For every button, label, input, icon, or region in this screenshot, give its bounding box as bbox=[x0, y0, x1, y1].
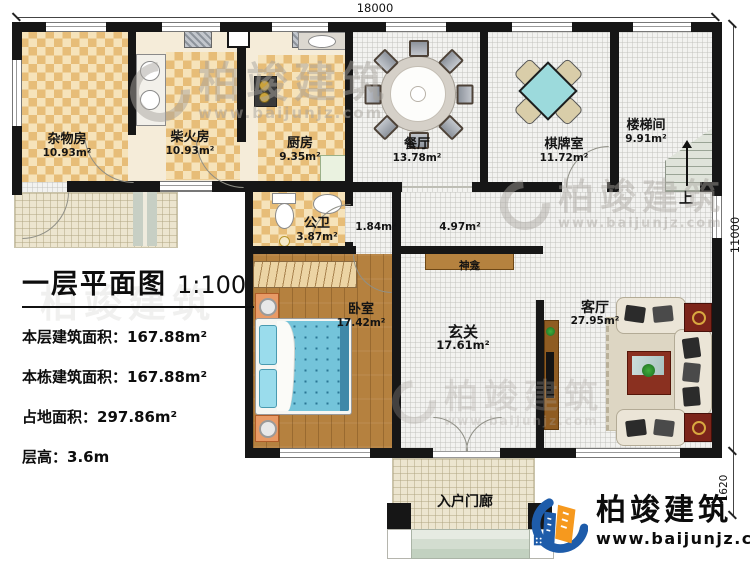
wall-kitchen-dining bbox=[345, 32, 353, 192]
plant-icon bbox=[642, 364, 655, 377]
info-line: 层高：3.6m bbox=[22, 446, 254, 467]
wall-firewood-kitchen bbox=[237, 32, 246, 142]
dining-chair bbox=[409, 40, 429, 57]
wall-top bbox=[12, 22, 722, 32]
terrace-strips bbox=[133, 192, 157, 246]
bed bbox=[255, 318, 352, 415]
hall-area-label: 4.97m² bbox=[432, 221, 488, 233]
window bbox=[46, 22, 106, 32]
room-label-kitchen: 厨房 9.35m² bbox=[255, 137, 345, 163]
plant-icon bbox=[546, 327, 555, 336]
porch-label: 入户门廊 bbox=[405, 491, 525, 511]
sofa-bottom bbox=[616, 409, 686, 446]
wall-bottom bbox=[680, 448, 722, 458]
sofa-right bbox=[674, 329, 712, 415]
wall-foyer-living bbox=[536, 300, 544, 448]
window bbox=[512, 22, 572, 32]
info-line: 占地面积：297.86m² bbox=[22, 406, 254, 427]
room-label-foyer: 玄关 17.61m² bbox=[418, 325, 508, 351]
tv-icon bbox=[546, 352, 554, 398]
dining-chair bbox=[365, 85, 382, 105]
stairs-up-arrow bbox=[686, 146, 688, 186]
floor-plan-canvas: 神龛 bbox=[0, 0, 750, 567]
window bbox=[160, 181, 212, 192]
wall-storage-firewood bbox=[128, 32, 136, 135]
room-label-bathroom: 公卫 3.87m² bbox=[272, 217, 362, 243]
info-line: 本层建筑面积：167.88m² bbox=[22, 326, 254, 347]
nightstand-lamp-icon bbox=[259, 420, 277, 438]
blanket-edge bbox=[340, 321, 349, 411]
window bbox=[576, 448, 680, 458]
wall-bottom bbox=[500, 448, 576, 458]
window bbox=[633, 22, 691, 32]
info-line: 本栋建筑面积：167.88m² bbox=[22, 366, 254, 387]
wall-game-stair bbox=[610, 32, 619, 182]
stairs-up-label: 上 bbox=[679, 188, 693, 208]
firewood-pot-1 bbox=[140, 61, 160, 81]
burner-2 bbox=[259, 92, 270, 103]
dimension-height: 11000 bbox=[728, 214, 742, 256]
dining-chair bbox=[457, 85, 474, 105]
wardrobe bbox=[253, 261, 357, 288]
shrine-label: 神龛 bbox=[459, 260, 480, 272]
shrine-cabinet: 神龛 bbox=[425, 253, 514, 270]
pillow bbox=[259, 325, 277, 365]
room-label-dining: 餐厅 13.78m² bbox=[372, 138, 462, 164]
plan-title: 一层平面图 bbox=[22, 262, 167, 301]
kitchen-sink bbox=[308, 35, 336, 48]
plan-scale: 1:100 bbox=[177, 271, 246, 299]
window bbox=[280, 448, 370, 458]
room-label-storage: 杂物房 10.93m² bbox=[22, 133, 112, 159]
entry-threshold bbox=[433, 451, 500, 458]
side-table-decor-icon bbox=[692, 421, 706, 435]
company-logo-text: 柏竣建筑 www.baijunjz.com bbox=[596, 494, 750, 548]
firewood-pot-2 bbox=[140, 90, 160, 110]
room-label-firewood: 柴火房 10.93m² bbox=[145, 131, 235, 157]
wall-bathroom-bottom bbox=[245, 246, 356, 254]
window bbox=[272, 22, 328, 32]
window bbox=[12, 60, 22, 126]
company-name: 柏竣建筑 bbox=[596, 494, 750, 527]
room-label-bedroom: 卧室 17.42m² bbox=[316, 303, 406, 329]
company-logo: 柏竣建筑 www.baijunjz.com bbox=[530, 494, 750, 558]
range-hood-icon bbox=[184, 31, 212, 48]
window bbox=[712, 196, 722, 238]
porch-column-base bbox=[387, 529, 413, 559]
wall-hall-top bbox=[353, 182, 402, 192]
room-label-gameroom: 棋牌室 11.72m² bbox=[519, 138, 609, 164]
company-website: www.baijunjz.com bbox=[596, 529, 750, 548]
nightstand-lamp-icon bbox=[259, 298, 277, 316]
room-label-living: 客厅 27.95m² bbox=[550, 301, 640, 327]
dimension-line-right bbox=[733, 24, 734, 515]
plan-title-row: 一层平面图 1:100 bbox=[22, 262, 254, 308]
coffee-table bbox=[627, 351, 671, 395]
wall-wing-bottom bbox=[67, 181, 160, 192]
wall-hall-top bbox=[700, 182, 722, 192]
flue-box bbox=[227, 30, 250, 48]
wall-right bbox=[712, 22, 722, 458]
porch-steps bbox=[411, 529, 530, 559]
dimension-width: 18000 bbox=[340, 1, 410, 15]
wall-hall-top bbox=[472, 182, 562, 192]
wall-foyer-top bbox=[401, 246, 543, 254]
side-table-decor-icon bbox=[692, 311, 706, 325]
window bbox=[386, 22, 446, 32]
wall-dining-game bbox=[480, 32, 488, 182]
opening-marker bbox=[402, 186, 472, 188]
wall-bottom bbox=[370, 448, 433, 458]
hall-area-label: 1.84m² bbox=[352, 221, 400, 233]
burner-1 bbox=[259, 80, 270, 91]
pillow bbox=[259, 369, 277, 408]
company-logo-icon bbox=[530, 494, 588, 558]
dimension-line-top bbox=[16, 17, 716, 18]
window bbox=[162, 22, 220, 32]
room-label-stairwell: 楼梯间 9.91m² bbox=[601, 119, 691, 145]
title-block: 一层平面图 1:100 本层建筑面积：167.88m² 本栋建筑面积：167.8… bbox=[22, 262, 254, 467]
dining-table-center bbox=[410, 86, 426, 102]
